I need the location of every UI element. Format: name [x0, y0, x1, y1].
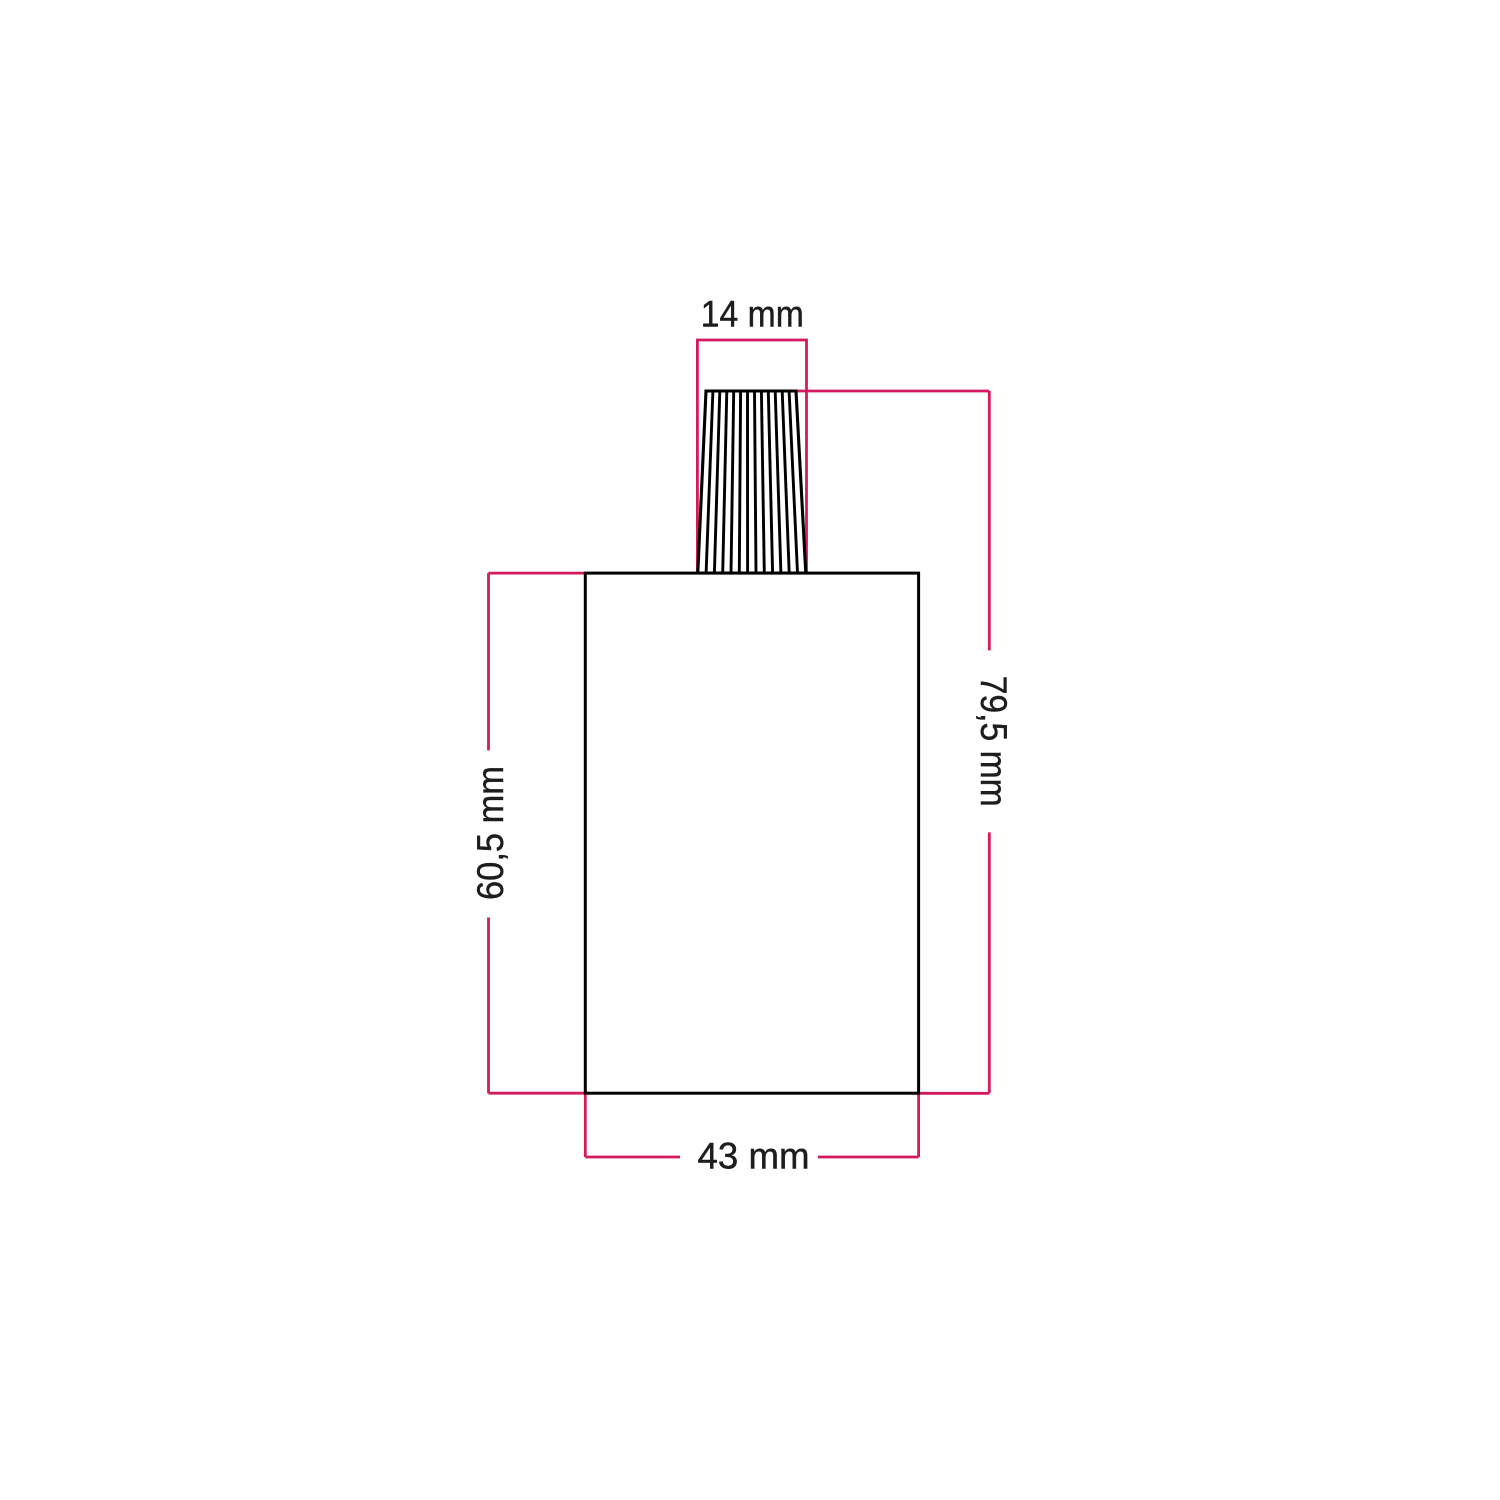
svg-text:79,5 mm: 79,5 mm — [973, 676, 1014, 807]
svg-text:60,5 mm: 60,5 mm — [470, 766, 511, 900]
svg-text:43 mm: 43 mm — [698, 1136, 810, 1177]
svg-text:14 mm: 14 mm — [701, 294, 804, 335]
